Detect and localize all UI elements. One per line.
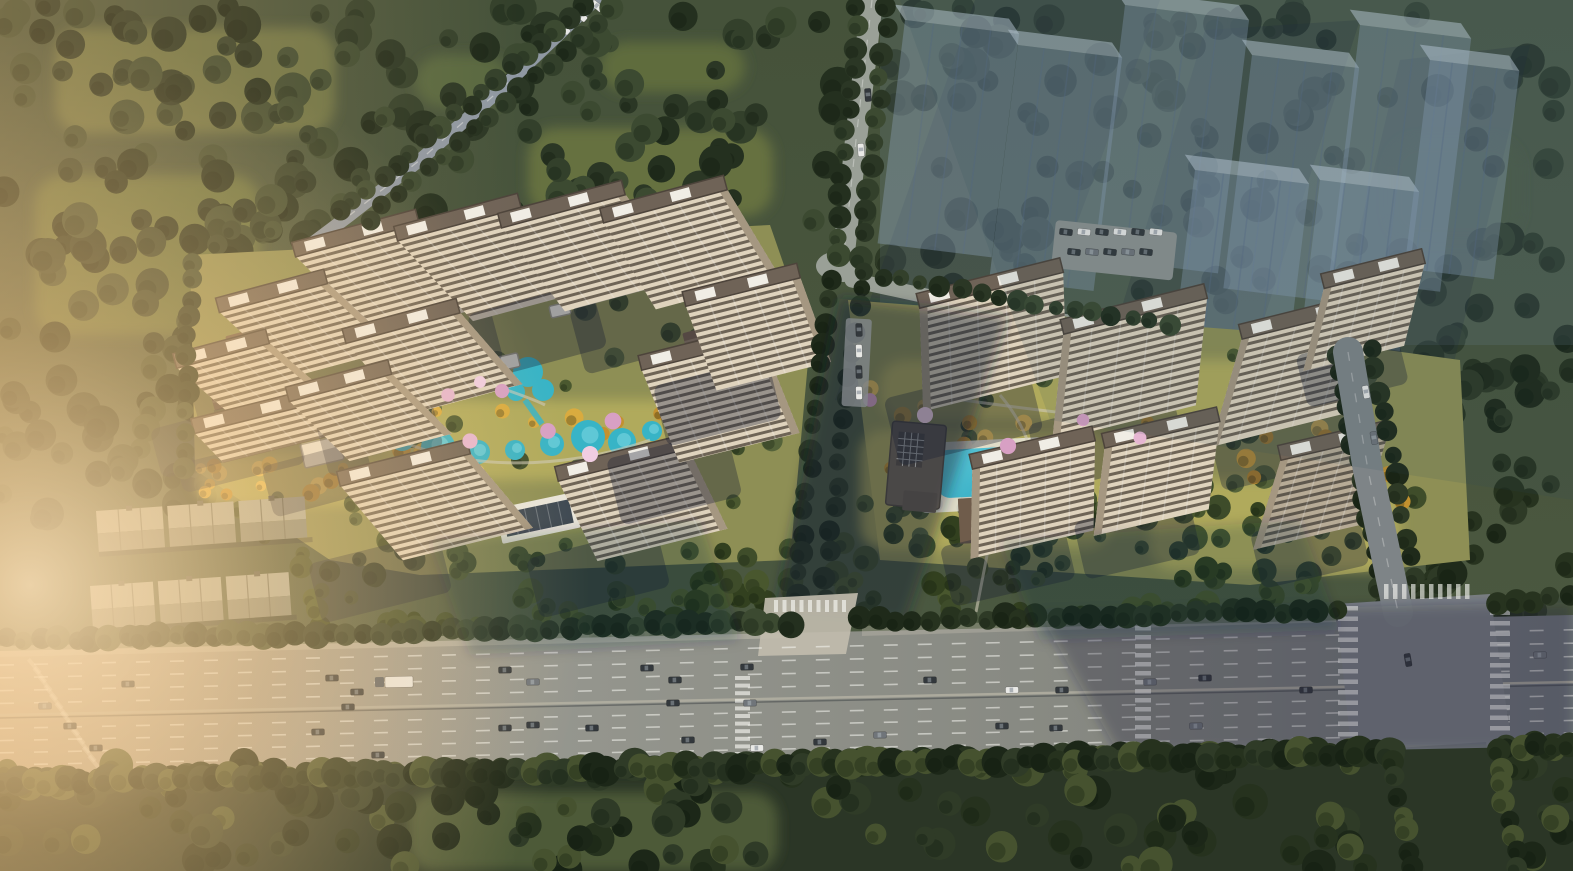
shadow-overlay [1000,520,1340,640]
crosswalk [834,600,838,612]
aerial-rendering-canvas [0,0,1573,871]
car [1055,687,1068,694]
car [1005,687,1018,694]
car [856,344,863,357]
crosswalk [1456,584,1461,599]
car [668,677,681,684]
car [923,677,936,684]
crosswalk [1393,584,1398,599]
crosswalk [1465,584,1470,599]
car [585,725,598,732]
crosswalk [1447,584,1452,599]
car [813,739,826,746]
crosswalk [842,600,846,612]
crosswalk [808,600,812,612]
crosswalk [1420,584,1425,599]
car [995,723,1008,730]
car [873,732,886,739]
car [856,365,863,378]
crosswalk [1411,584,1416,599]
crosswalk [783,600,787,612]
crosswalk [800,600,804,612]
car [666,700,679,707]
crosswalk [825,600,829,612]
crosswalk [791,600,795,612]
aerial-render [0,0,1573,871]
crosswalk [1438,584,1443,599]
crosswalk [1402,584,1407,599]
crosswalk [817,600,821,612]
crosswalk [1429,584,1434,599]
crosswalk [1384,584,1389,599]
crosswalk [774,600,778,612]
car [743,700,756,707]
car [864,88,871,101]
car [640,665,653,672]
car [740,664,753,671]
car [1049,725,1062,732]
car [856,323,863,336]
car [857,143,864,156]
warm-wash-overlay [0,0,520,871]
car [856,386,863,399]
car [681,737,694,744]
car [750,745,763,752]
